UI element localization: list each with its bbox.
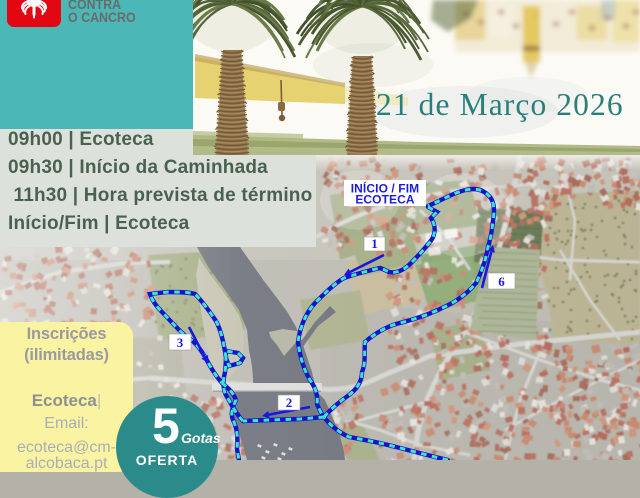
svg-text:2: 2 <box>286 395 293 410</box>
svg-text:6: 6 <box>498 274 505 289</box>
svg-text:ECOTECA: ECOTECA <box>355 193 415 207</box>
svg-text:1: 1 <box>371 236 378 251</box>
svg-text:3: 3 <box>177 335 184 350</box>
